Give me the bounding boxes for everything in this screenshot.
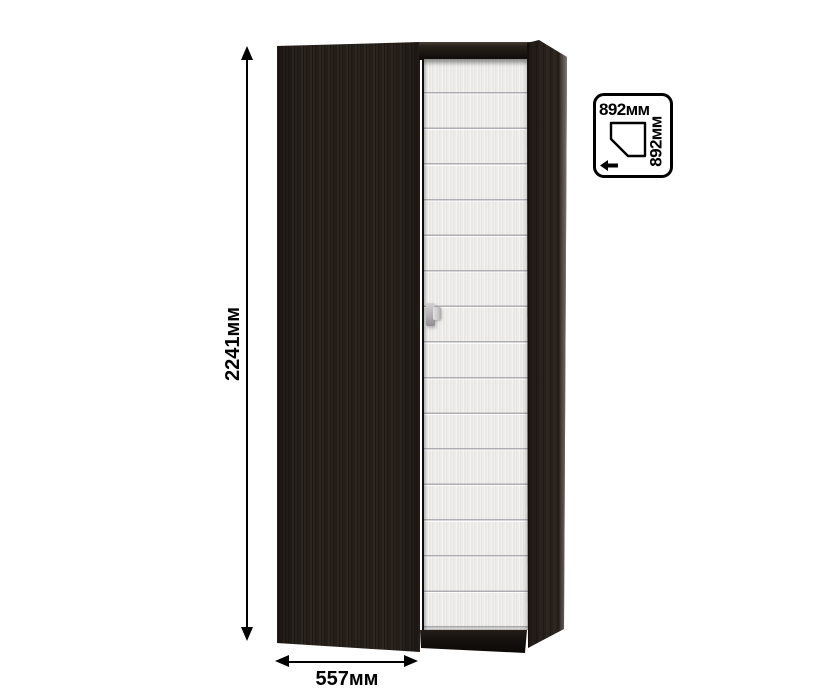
height-dimension-label: 2241мм <box>222 282 244 406</box>
product-diagram: 2241мм 557мм 892мм 892мм <box>0 0 816 700</box>
arrow-down-icon <box>241 627 253 641</box>
door-panel <box>422 59 529 630</box>
arrow-left-icon <box>275 655 289 667</box>
left-side-panel <box>277 42 420 653</box>
left-arrow-icon <box>600 160 618 171</box>
arrow-up-icon <box>241 46 253 60</box>
arrow-right-icon <box>404 655 418 667</box>
width-dimension-label: 557мм <box>277 668 417 691</box>
height-dimension-line <box>246 54 248 632</box>
corner-footprint-icon <box>611 123 645 156</box>
base-plinth <box>420 630 527 653</box>
width-dimension-line <box>287 661 407 663</box>
footprint-badge: 892мм 892мм <box>593 93 673 178</box>
door-handle-knob <box>433 307 441 320</box>
right-side-panel <box>527 40 568 649</box>
top-frame-panel <box>419 42 540 60</box>
footprint-diagram <box>596 96 670 175</box>
